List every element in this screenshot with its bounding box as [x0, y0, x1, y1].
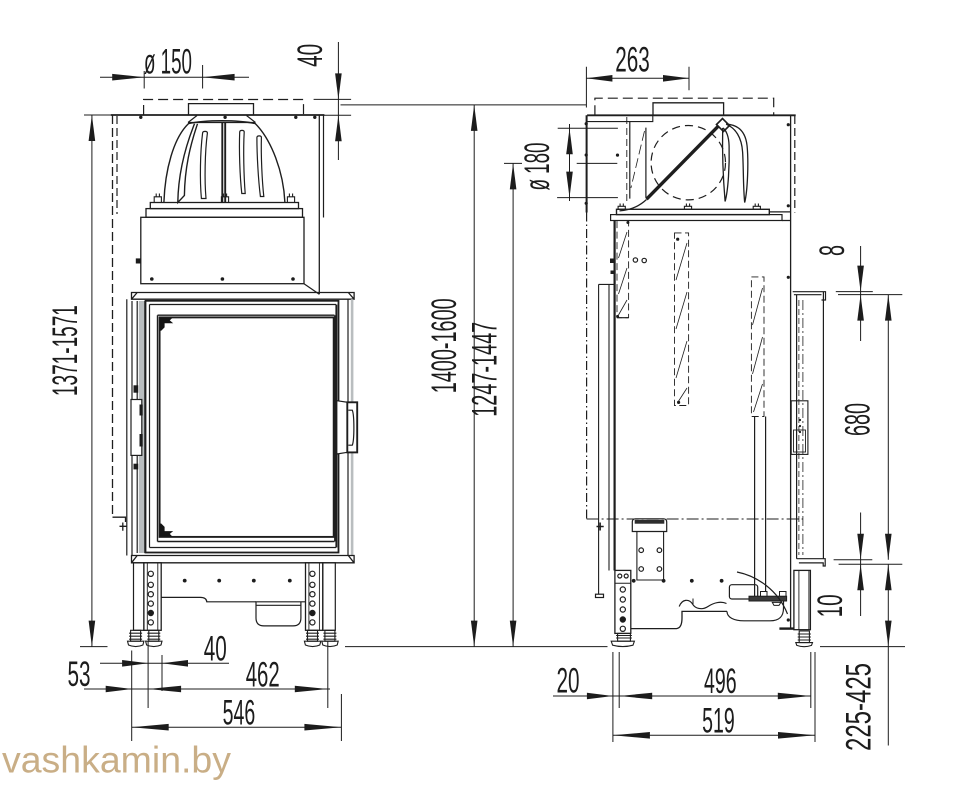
svg-text:53: 53 — [68, 655, 91, 694]
svg-text:10: 10 — [811, 594, 850, 617]
svg-text:40: 40 — [204, 630, 227, 669]
svg-text:519: 519 — [702, 701, 735, 740]
svg-text:1247-1447: 1247-1447 — [466, 322, 505, 417]
svg-text:40: 40 — [291, 44, 330, 67]
svg-text:ø 180: ø 180 — [518, 143, 557, 191]
svg-text:225-425: 225-425 — [839, 663, 878, 751]
svg-text:496: 496 — [704, 662, 737, 701]
svg-text:20: 20 — [557, 662, 580, 701]
svg-text:1371-1571: 1371-1571 — [46, 305, 85, 396]
svg-text:263: 263 — [615, 41, 650, 80]
svg-text:546: 546 — [223, 694, 256, 733]
svg-text:680: 680 — [839, 403, 878, 436]
svg-text:462: 462 — [246, 655, 280, 694]
svg-text:8: 8 — [813, 245, 852, 256]
svg-text:vashkamin.by: vashkamin.by — [2, 740, 231, 781]
svg-text:ø 150: ø 150 — [144, 43, 192, 82]
svg-text:1400-1600: 1400-1600 — [425, 298, 464, 393]
